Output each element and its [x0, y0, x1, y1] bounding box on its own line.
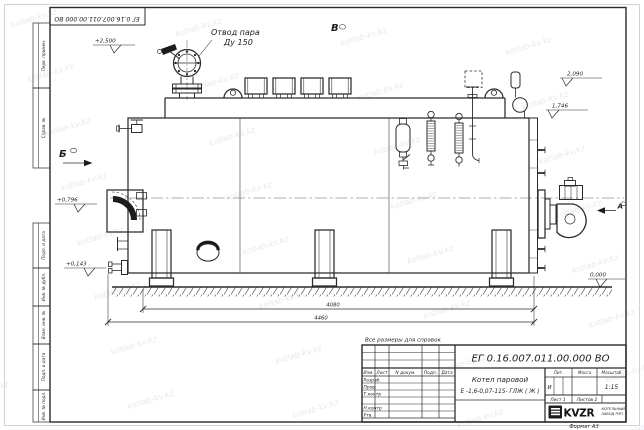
view-letter-a: А [617, 203, 623, 211]
boiler-drawing-svg: kotlab-kv.kz ЕГ 0.16.007.011.00.000 ВО П… [0, 0, 644, 430]
elevation-label: 0,000 [590, 273, 606, 279]
elevation-label: +0,143 [66, 262, 87, 268]
side-column-label: Подп. и дата [41, 352, 46, 381]
side-column-label: Справ. № [41, 117, 46, 138]
callout-line1: Отвод пара [211, 28, 260, 37]
view-letter-b: Б [59, 149, 67, 160]
col-list: Лист [375, 370, 388, 376]
reference-note: Все размеры для справок [365, 338, 442, 344]
row-tkontr: Т.контр [364, 392, 382, 398]
lit-value: И [547, 385, 551, 391]
doc-number-rotated-text: ЕГ 0.16.007.011.00.000 ВО [54, 15, 139, 22]
ground [112, 287, 612, 297]
row-prov: Пров. [364, 385, 377, 391]
side-column-label: Взам. инв. № [41, 310, 46, 339]
view-letter-v: В [331, 23, 339, 34]
company-line1: КОТЕЛЬНЫЙ [602, 406, 626, 411]
side-column-label: Инв. № дубл. [41, 273, 46, 302]
product-name: Котел паровой [472, 375, 529, 384]
elevation-label: 1,746 [552, 104, 568, 110]
col-data: Дата [440, 370, 453, 376]
company-line2: ЗАВОД РЭП [602, 412, 624, 416]
drawing-sheet: kotlab-kv.kz ЕГ 0.16.007.011.00.000 ВО П… [0, 0, 644, 430]
dimension-4080: 4080 [326, 303, 340, 309]
row-nkontr: Н.контр [364, 406, 382, 412]
mass-header: Масса [578, 370, 592, 375]
side-column-label: Подп. и дата [41, 231, 46, 260]
col-podp: Подп. [424, 370, 437, 376]
title-doc-number: ЕГ 0.16.007.011.00.000 ВО [472, 354, 610, 365]
dimension-4460: 4460 [314, 316, 328, 322]
lit-header: Лит. [553, 370, 564, 375]
row-razrab: Разраб. [364, 378, 381, 384]
sheets-total: Листов 2 [576, 397, 598, 403]
scale-value: 1:15 [605, 384, 619, 391]
side-column-label: Перв. примен. [41, 40, 46, 71]
watermark-layer [0, 0, 644, 430]
elevation-label: +0,796 [57, 198, 78, 204]
logo-text: KVZR [564, 408, 595, 420]
elevation-label: 2,090 [567, 72, 583, 78]
format-label: Формат А3 [569, 424, 599, 430]
sheet-number: Лист 1 [549, 397, 566, 403]
col-ndoc: N докум. [395, 370, 415, 376]
col-izm: Изм. [363, 370, 373, 376]
side-column-label: Инв. № подл. [41, 392, 46, 421]
product-code: Е -1,6-0,07-115- ГЛЖ ( Ж ) [460, 389, 539, 395]
callout-line2: Ду 150 [223, 38, 253, 47]
elevation-label: +2,500 [95, 39, 116, 45]
row-utv: Утв. [364, 413, 373, 419]
scale-header: Масштаб [602, 370, 622, 375]
